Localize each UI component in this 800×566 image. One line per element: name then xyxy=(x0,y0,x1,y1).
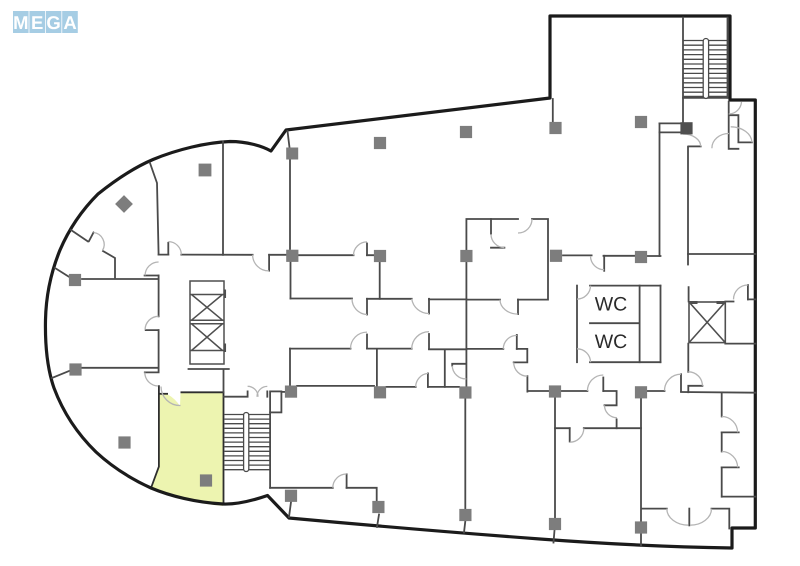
svg-text:A: A xyxy=(63,12,76,33)
svg-text:WC: WC xyxy=(595,331,628,353)
svg-text:G: G xyxy=(46,12,60,33)
svg-text:WC: WC xyxy=(595,294,628,316)
svg-text:M: M xyxy=(13,12,28,33)
svg-text:E: E xyxy=(31,12,43,33)
